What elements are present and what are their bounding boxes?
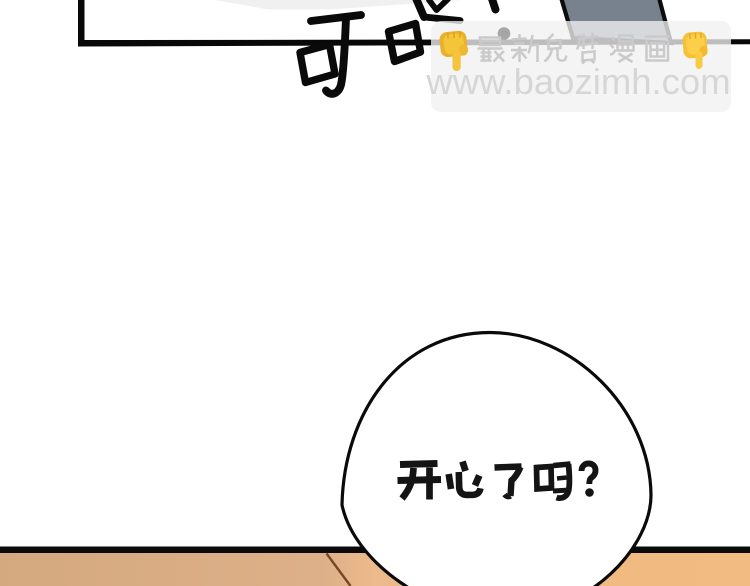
svg-text:www.baozimh.com: www.baozimh.com [425,61,730,102]
